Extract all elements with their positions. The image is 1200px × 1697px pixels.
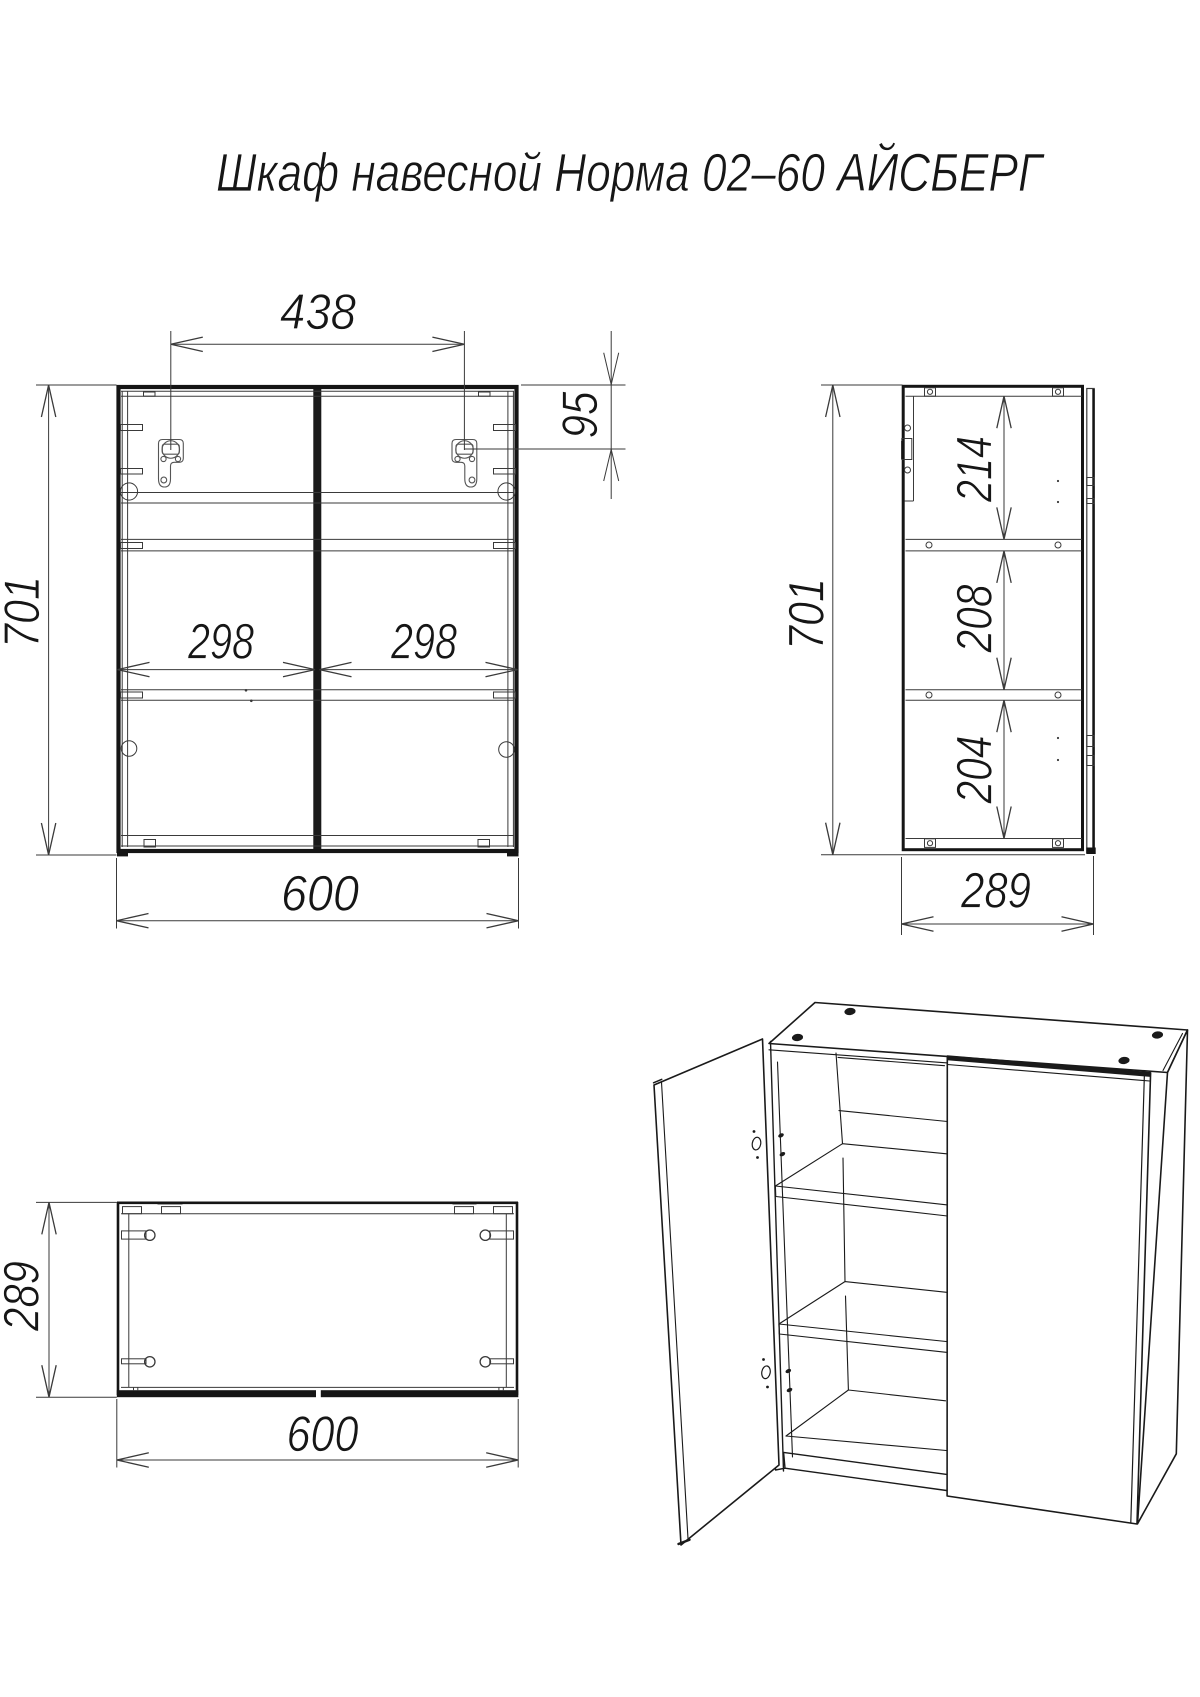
svg-text:289: 289 [0, 1261, 50, 1332]
svg-text:600: 600 [287, 1406, 359, 1462]
svg-text:289: 289 [960, 863, 1031, 919]
svg-text:298: 298 [390, 614, 457, 670]
svg-text:95: 95 [552, 391, 608, 438]
svg-text:Шкаф навесной Норма 02–60 АЙСБ: Шкаф навесной Норма 02–60 АЙСБЕРГ [216, 142, 1045, 203]
svg-text:600: 600 [281, 866, 359, 922]
svg-text:701: 701 [779, 578, 835, 650]
svg-text:208: 208 [947, 584, 1003, 653]
svg-text:298: 298 [187, 614, 254, 670]
svg-text:204: 204 [947, 736, 1003, 805]
svg-text:214: 214 [947, 436, 1003, 503]
svg-text:438: 438 [280, 284, 356, 340]
svg-text:701: 701 [0, 576, 50, 648]
